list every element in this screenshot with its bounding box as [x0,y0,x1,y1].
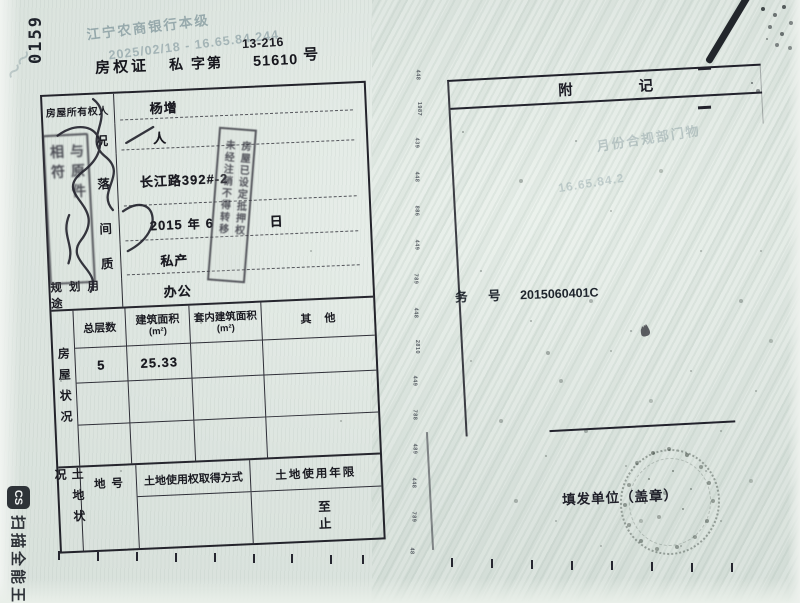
edge-tick [136,552,138,561]
land-number-cell: 地号 [80,465,140,551]
edge-tick [651,562,653,571]
business-number-value: 2015060401C [520,285,599,302]
seal-speckles [0,0,2,2]
business-number-label: 务 号 [455,289,505,305]
edge-tick [611,561,613,570]
spine-mark: 449 [412,376,418,387]
term-from: 至 [318,498,333,516]
term-from-to: 至 止 [252,496,334,535]
other-value [263,336,376,376]
empty-cell [130,421,196,464]
header-land-term: 土地使用年限 [250,455,381,492]
spine-mark: 1987 [416,102,422,116]
empty-cell [78,423,132,465]
title-certificate-number: 51610 [253,52,299,70]
edge-tick [175,553,177,562]
land-value-row: 至 止 [138,486,384,548]
land-method-value [138,492,254,548]
empty-cell [264,371,378,418]
edge-tick [291,554,293,563]
spine-mark: 449 [413,240,419,251]
building-status-grid: 总层数 建筑面积 (m²) 套内建筑面积 (m²) 其他 5 25.33 [73,298,379,466]
spine-mark: 448 [411,478,417,489]
edge-tick [691,563,693,572]
floors-value: 5 [75,346,128,383]
spine-mark: 448 [414,70,420,81]
header-inner-area: 套内建筑面积 (m²) [189,303,263,344]
scanned-certificate-photo: 江宁农商银行本级 2025/02/18 - 16.65.84.244 月份合规部… [0,0,800,603]
title-zi-di: 字第 [191,52,224,73]
header-total-floors: 总层数 [73,308,127,348]
empty-cell [266,413,380,458]
building-status-section: 房屋状况 总层数 建筑面积 (m²) 套内建筑面积 (m²) 其他 5 25.3… [51,296,380,467]
spine-mark: 886 [413,206,419,217]
notes-panel: 附记 [447,64,779,437]
edge-tick [330,555,332,564]
header-land-method: 土地使用权取得方式 [136,460,251,496]
edge-tick [214,553,216,562]
header-building-area: 建筑面积 (m²) [125,306,191,347]
header-inner-area-unit: (m²) [217,322,235,335]
land-status-grid: 土地使用权取得方式 土地使用年限 至 止 [136,455,383,549]
spine-mark: 48 [408,547,414,554]
handwritten-signature [31,87,195,307]
land-status-section: 土地状况 地号 土地使用权取得方式 土地使用年限 至 止 [58,453,383,552]
spine-mark: 788 [411,410,417,421]
inner-area-value [191,341,264,379]
serial-code-rotated: 0159 [26,15,46,64]
edge-tick [362,555,364,564]
empty-cell [193,375,267,420]
empty-cell [129,379,195,424]
photo-edge-right [788,0,800,603]
edge-tick [731,563,733,572]
header-other: 其他 [261,298,375,341]
title-doc-type: 房权证 [95,55,150,78]
edge-tick [571,561,573,570]
edge-tick [97,552,99,561]
spine-mark: 448 [413,172,419,183]
notes-title: 附记 [558,70,720,99]
spine-mark: 789 [410,512,416,523]
spine-mark: 448 [412,308,418,319]
scanner-app-name: 扫描全能王 [8,515,29,603]
edge-tick [58,551,60,560]
header-building-area-unit: (m²) [149,325,167,338]
scanner-app-watermark: CS 扫描全能王 [7,486,30,603]
edge-tick [491,559,493,568]
title-hao: 号 [303,43,319,65]
date-day-unit: 日 [269,210,284,230]
empty-cell [77,381,131,425]
term-to: 止 [319,515,334,533]
scanner-app-icon: CS [7,486,30,509]
edge-tick [253,554,255,563]
area-value: 25.33 [127,344,192,382]
spine-mark: 439 [414,138,420,149]
photo-edge-bottom [0,578,800,603]
edge-tick [451,558,453,567]
edge-tick [531,560,533,569]
spine-mark: 2810 [414,340,420,354]
spine-mark: 489 [411,444,417,455]
empty-cell [194,417,268,460]
land-term-value: 至 止 [252,486,384,543]
building-status-side-text: 房屋状况 [55,346,76,431]
spine-mark: 789 [413,274,419,285]
title-ownership-type: 私 [169,54,184,75]
